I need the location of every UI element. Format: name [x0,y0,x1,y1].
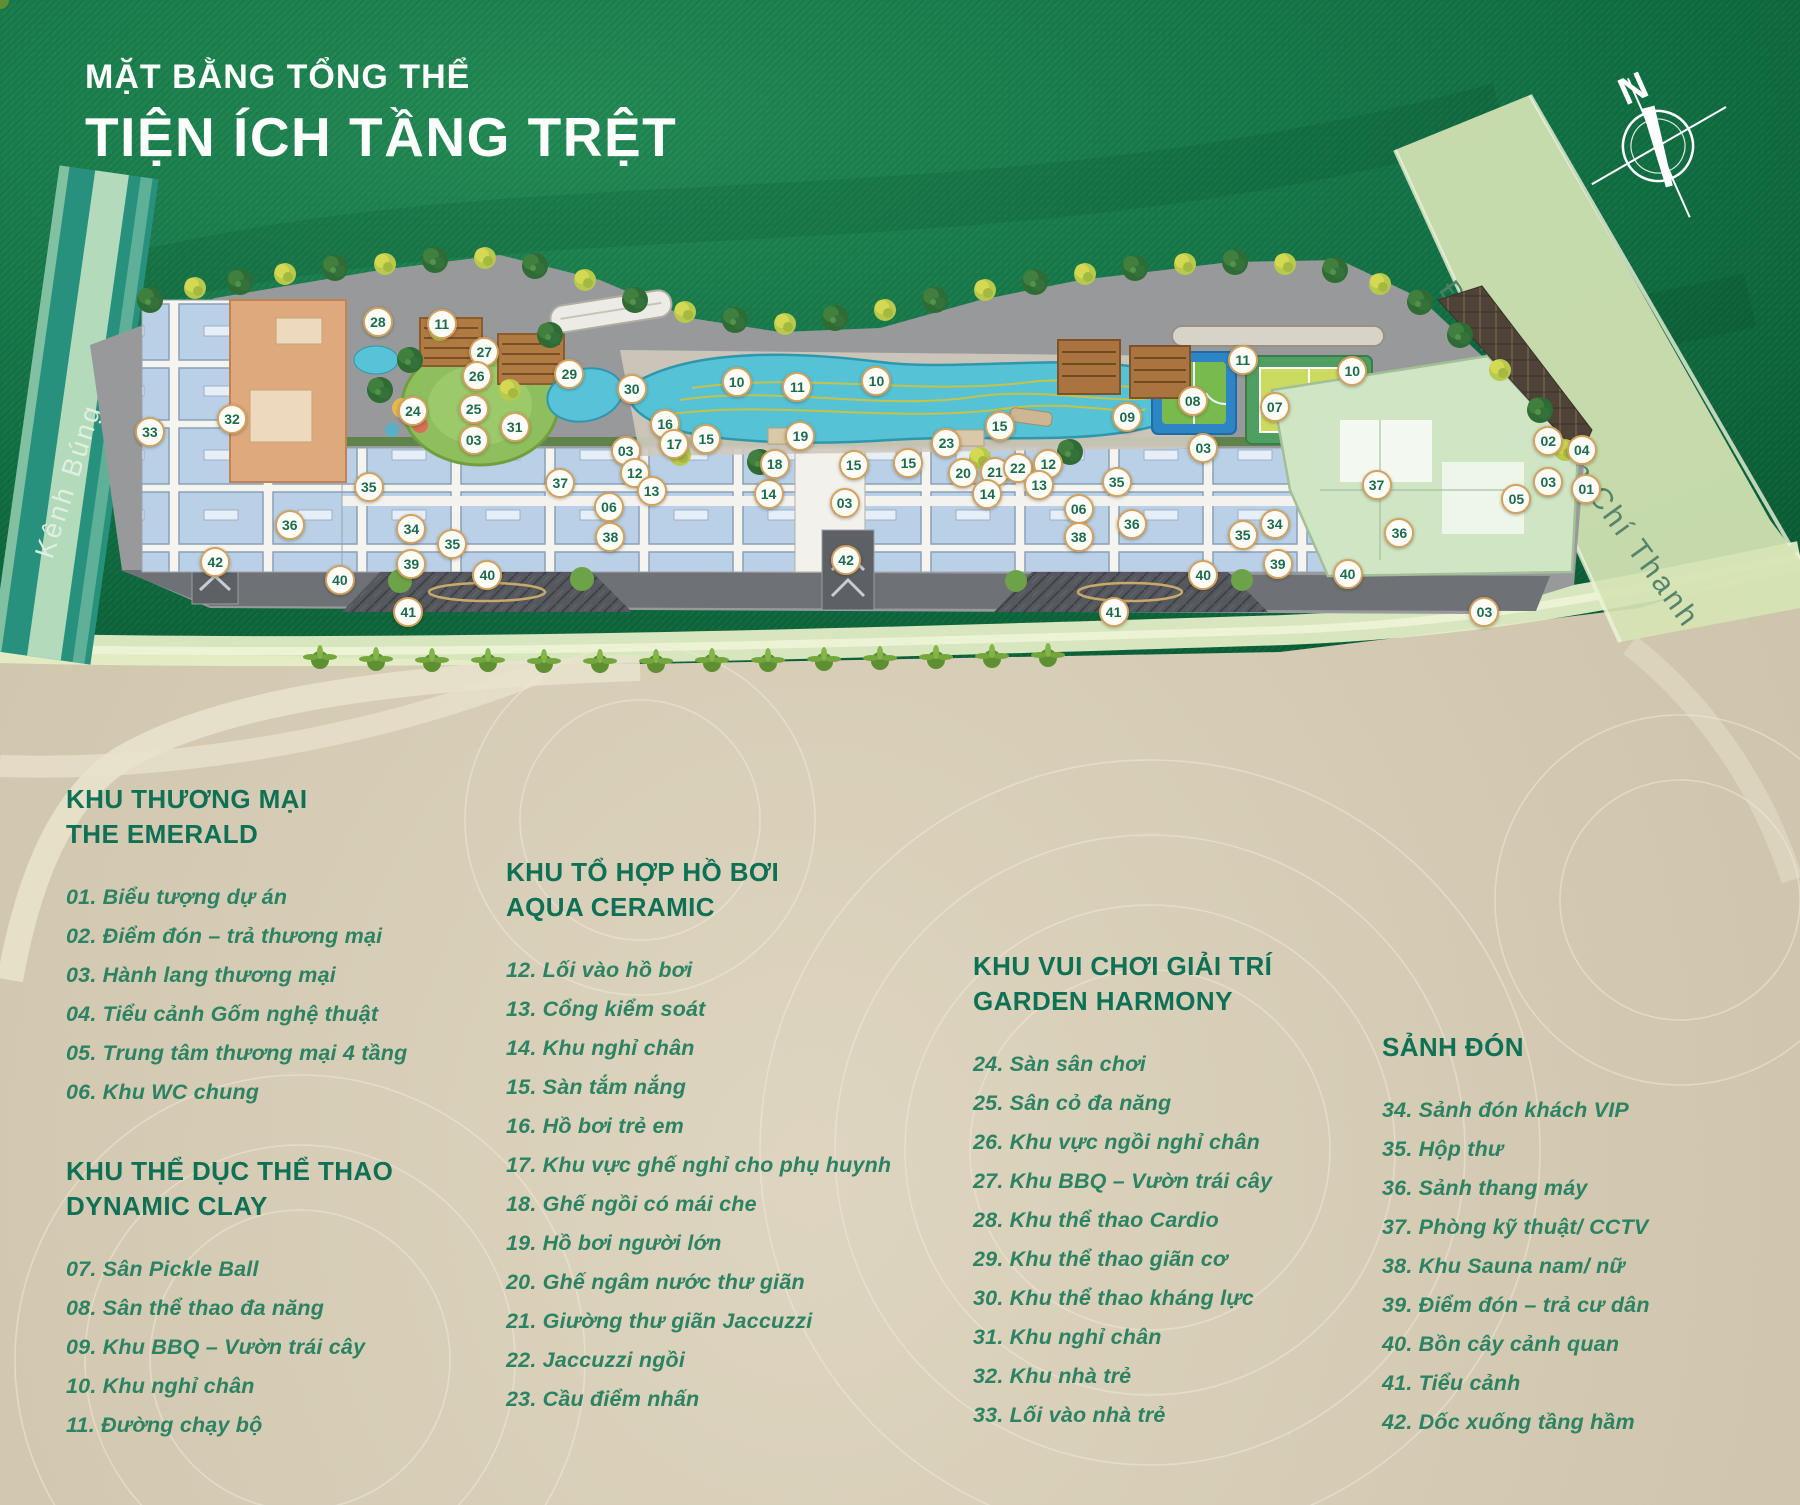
legend-item: 29. Khu thể thao giãn cơ [973,1240,1433,1279]
plan-marker: 20 [948,458,978,488]
plan-marker: 39 [1263,549,1293,579]
legend-section: KHU THƯƠNG MẠITHE EMERALD01. Biểu tượng … [66,782,526,1112]
legend-section-title: KHU TỔ HỢP HỒ BƠIAQUA CERAMIC [506,855,966,925]
plan-marker: 01 [1571,474,1601,504]
plan-marker: 23 [931,428,961,458]
legend-item: 04. Tiểu cảnh Gốm nghệ thuật [66,995,526,1034]
plan-marker: 36 [1117,509,1147,539]
plan-marker: 34 [396,514,426,544]
legend-section: SẢNH ĐÓN34. Sảnh đón khách VIP35. Hộp th… [1382,1030,1800,1442]
title-block: MẶT BẰNG TỔNG THỂ TIỆN ÍCH TẦNG TRỆT [85,58,677,169]
plan-marker: 38 [1064,522,1094,552]
plan-marker: 35 [437,529,467,559]
legend-item: 13. Cổng kiểm soát [506,990,966,1029]
plan-marker: 03 [459,425,489,455]
plan-marker: 10 [1337,356,1367,386]
legend-item: 16. Hồ bơi trẻ em [506,1107,966,1146]
legend-section-title: KHU THƯƠNG MẠITHE EMERALD [66,782,526,852]
legend-item: 09. Khu BBQ – Vườn trái cây [66,1328,526,1367]
legend-item: 07. Sân Pickle Ball [66,1250,526,1289]
plan-marker: 14 [972,479,1002,509]
plan-marker: 35 [1228,520,1258,550]
plan-marker: 17 [659,429,689,459]
legend-item: 01. Biểu tượng dự án [66,878,526,917]
plan-marker: 28 [363,307,393,337]
legend-section: KHU VUI CHƠI GIẢI TRÍGARDEN HARMONY24. S… [973,949,1433,1435]
plan-marker: 25 [459,394,489,424]
legend-item: 37. Phòng kỹ thuật/ CCTV [1382,1208,1800,1247]
plan-marker: 36 [1384,518,1414,548]
page-title: TIỆN ÍCH TẦNG TRỆT [85,105,677,169]
plan-marker: 10 [861,366,891,396]
plan-marker: 18 [760,449,790,479]
legend-item: 28. Khu thể thao Cardio [973,1201,1433,1240]
plan-marker: 19 [785,421,815,451]
legend-item: 14. Khu nghỉ chân [506,1029,966,1068]
plan-marker: 15 [893,448,923,478]
legend-item: 02. Điểm đón – trả thương mại [66,917,526,956]
legend-item: 26. Khu vực ngồi nghỉ chân [973,1123,1433,1162]
plan-marker: 15 [691,424,721,454]
plan-marker: 31 [500,412,530,442]
legend-item: 17. Khu vực ghế nghỉ cho phụ huynh [506,1146,966,1185]
legend-column-3: KHU VUI CHƠI GIẢI TRÍGARDEN HARMONY24. S… [973,949,1433,1435]
plan-marker: 03 [1469,597,1499,627]
legend-item: 03. Hành lang thương mại [66,956,526,995]
legend-item: 22. Jaccuzzi ngồi [506,1341,966,1380]
legend-item: 40. Bồn cây cảnh quan [1382,1325,1800,1364]
legend-item: 06. Khu WC chung [66,1073,526,1112]
plan-marker: 40 [472,560,502,590]
legend-section: KHU TỔ HỢP HỒ BƠIAQUA CERAMIC12. Lối vào… [506,855,966,1419]
legend-item: 11. Đường chạy bộ [66,1406,526,1445]
plan-marker: 11 [1228,345,1258,375]
legend-item: 39. Điểm đón – trả cư dân [1382,1286,1800,1325]
legend-column-4: SẢNH ĐÓN34. Sảnh đón khách VIP35. Hộp th… [1382,1030,1800,1442]
legend-item: 27. Khu BBQ – Vườn trái cây [973,1162,1433,1201]
legend-item: 32. Khu nhà trẻ [973,1357,1433,1396]
plan-marker: 11 [427,309,457,339]
plan-marker: 40 [1333,559,1363,589]
plan-marker: 05 [1501,484,1531,514]
plan-marker: 36 [275,510,305,540]
plan-marker: 40 [325,565,355,595]
legend-item: 36. Sảnh thang máy [1382,1169,1800,1208]
legend-item: 31. Khu nghỉ chân [973,1318,1433,1357]
legend-section-title: KHU THỂ DỤC THỂ THAODYNAMIC CLAY [66,1154,526,1224]
legend-item: 24. Sàn sân chơi [973,1045,1433,1084]
legend-section-title: KHU VUI CHƠI GIẢI TRÍGARDEN HARMONY [973,949,1433,1019]
plan-marker: 03 [830,488,860,518]
legend-column-2: KHU TỔ HỢP HỒ BƠIAQUA CERAMIC12. Lối vào… [506,855,966,1419]
legend-item: 41. Tiểu cảnh [1382,1364,1800,1403]
legend-item: 34. Sảnh đón khách VIP [1382,1091,1800,1130]
plan-marker: 09 [1112,402,1142,432]
legend-section-title: SẢNH ĐÓN [1382,1030,1800,1065]
legend-item: 15. Sàn tắm nắng [506,1068,966,1107]
legend-item: 08. Sân thể thao đa năng [66,1289,526,1328]
plan-marker: 41 [1099,597,1129,627]
legend-item: 42. Dốc xuống tầng hầm [1382,1403,1800,1442]
plan-marker: 35 [354,472,384,502]
legend-section: KHU THỂ DỤC THỂ THAODYNAMIC CLAY07. Sân … [66,1154,526,1445]
plan-marker: 03 [1188,433,1218,463]
legend-item: 35. Hộp thư [1382,1130,1800,1169]
plan-marker: 06 [1064,494,1094,524]
plan-marker: 26 [462,361,492,391]
plan-marker: 04 [1567,435,1597,465]
plan-marker: 37 [1362,470,1392,500]
plan-marker: 02 [1533,426,1563,456]
legend-item: 19. Hồ bơi người lớn [506,1224,966,1263]
plan-marker: 30 [617,374,647,404]
legend-column-1: KHU THƯƠNG MẠITHE EMERALD01. Biểu tượng … [66,782,526,1445]
plan-marker: 32 [217,404,247,434]
plan-marker: 24 [398,396,428,426]
plan-marker: 15 [839,450,869,480]
plan-marker: 08 [1178,386,1208,416]
legend-item: 23. Cầu điểm nhấn [506,1380,966,1419]
plan-marker: 13 [1024,470,1054,500]
marker-layer: 3332281127262425310329301617150312133706… [80,240,1600,630]
plan-marker: 29 [554,359,584,389]
legend-item: 10. Khu nghỉ chân [66,1367,526,1406]
plan-marker: 42 [831,545,861,575]
legend-item: 20. Ghế ngâm nước thư giãn [506,1263,966,1302]
plan-marker: 39 [396,549,426,579]
plan-marker: 11 [782,372,812,402]
plan-marker: 14 [754,479,784,509]
legend-item: 21. Giường thư giãn Jaccuzzi [506,1302,966,1341]
legend-item: 05. Trung tâm thương mại 4 tầng [66,1034,526,1073]
plan-marker: 15 [985,411,1015,441]
plan-marker: 07 [1260,392,1290,422]
legend-item: 33. Lối vào nhà trẻ [973,1396,1433,1435]
page-subtitle: MẶT BẰNG TỔNG THỂ [85,58,677,97]
legend-item: 38. Khu Sauna nam/ nữ [1382,1247,1800,1286]
plan-marker: 38 [595,522,625,552]
plan-marker: 03 [1533,467,1563,497]
plan-marker: 13 [637,476,667,506]
legend-item: 18. Ghế ngồi có mái che [506,1185,966,1224]
plan-marker: 40 [1188,560,1218,590]
plan-marker: 10 [722,367,752,397]
plan-marker: 34 [1260,509,1290,539]
plan-marker: 42 [200,547,230,577]
plan-marker: 33 [135,417,165,447]
plan-marker: 41 [393,597,423,627]
legend-item: 25. Sân cỏ đa năng [973,1084,1433,1123]
plan-marker: 35 [1102,467,1132,497]
plan-marker: 06 [594,492,624,522]
legend-item: 30. Khu thể thao kháng lực [973,1279,1433,1318]
legend-item: 12. Lối vào hồ bơi [506,951,966,990]
plan-marker: 37 [545,468,575,498]
